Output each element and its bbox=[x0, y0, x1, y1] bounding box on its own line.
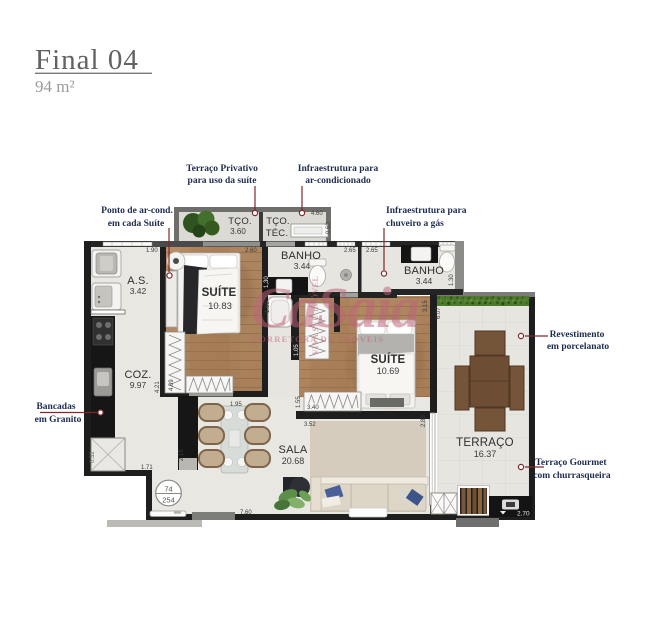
svg-text:0.32: 0.32 bbox=[90, 451, 96, 463]
svg-text:SUÍTE: SUÍTE bbox=[371, 353, 406, 366]
svg-text:0.60: 0.60 bbox=[326, 222, 332, 234]
svg-text:3.60: 3.60 bbox=[230, 227, 246, 236]
svg-text:3.42: 3.42 bbox=[130, 286, 147, 296]
svg-text:Terraço Privativo: Terraço Privativo bbox=[186, 164, 258, 174]
svg-text:4.60: 4.60 bbox=[311, 211, 323, 217]
svg-text:1.90: 1.90 bbox=[146, 248, 158, 254]
svg-text:4.09: 4.09 bbox=[169, 379, 175, 391]
svg-text:em cada Suíte: em cada Suíte bbox=[108, 219, 164, 229]
svg-text:3.40: 3.40 bbox=[307, 405, 319, 411]
svg-text:SALA: SALA bbox=[279, 444, 308, 456]
svg-text:3.15: 3.15 bbox=[423, 300, 429, 312]
svg-text:10.69: 10.69 bbox=[377, 366, 400, 376]
svg-text:Infraestrutura para: Infraestrutura para bbox=[298, 164, 379, 174]
svg-text:Ponto de ar-cond.: Ponto de ar-cond. bbox=[101, 206, 173, 216]
svg-text:SUÍTE: SUÍTE bbox=[202, 286, 237, 299]
svg-text:2.60: 2.60 bbox=[245, 248, 257, 254]
svg-text:TÇO.: TÇO. bbox=[266, 216, 290, 227]
svg-text:TERRAÇO: TERRAÇO bbox=[456, 437, 514, 449]
svg-text:4.21: 4.21 bbox=[155, 381, 161, 393]
svg-text:6.07: 6.07 bbox=[436, 307, 442, 319]
svg-text:2.65: 2.65 bbox=[366, 248, 378, 254]
svg-text:3.44: 3.44 bbox=[294, 261, 311, 271]
svg-text:em Granito: em Granito bbox=[35, 415, 82, 425]
svg-text:VIVA SEU IMÓVEL: VIVA SEU IMÓVEL bbox=[310, 276, 320, 355]
svg-text:TÇO.: TÇO. bbox=[228, 216, 252, 227]
svg-text:2.15: 2.15 bbox=[179, 449, 185, 461]
svg-text:16.37: 16.37 bbox=[474, 449, 497, 459]
svg-text:1.71: 1.71 bbox=[141, 465, 153, 471]
svg-text:2.80: 2.80 bbox=[421, 415, 427, 427]
svg-text:com churrasqueira: com churrasqueira bbox=[533, 471, 611, 481]
svg-text:2.65: 2.65 bbox=[344, 248, 356, 254]
svg-text:1.05: 1.05 bbox=[294, 344, 300, 356]
svg-text:TÉC.: TÉC. bbox=[266, 228, 288, 239]
svg-text:Bancadas: Bancadas bbox=[36, 402, 75, 412]
svg-text:ar-condicionado: ar-condicionado bbox=[305, 176, 371, 186]
svg-text:para uso da suíte: para uso da suíte bbox=[188, 176, 257, 186]
svg-text:94 m²: 94 m² bbox=[35, 77, 75, 96]
svg-text:Revestimento: Revestimento bbox=[550, 330, 605, 340]
svg-text:2.70: 2.70 bbox=[517, 511, 530, 518]
svg-text:em porcelanato: em porcelanato bbox=[547, 342, 610, 352]
svg-text:Final 04: Final 04 bbox=[35, 44, 139, 76]
svg-text:10.83: 10.83 bbox=[208, 301, 232, 312]
svg-text:chuveiro a gás: chuveiro a gás bbox=[386, 219, 444, 229]
svg-text:CaSaia: CaSaia bbox=[251, 275, 419, 340]
svg-text:1.55: 1.55 bbox=[296, 396, 302, 408]
svg-text:1.30: 1.30 bbox=[449, 274, 455, 286]
svg-text:3.52: 3.52 bbox=[304, 422, 316, 428]
svg-text:254: 254 bbox=[162, 496, 175, 505]
svg-text:74: 74 bbox=[164, 485, 172, 494]
svg-text:Terraço Gourmet: Terraço Gourmet bbox=[535, 458, 607, 468]
svg-text:20.68: 20.68 bbox=[282, 456, 305, 466]
svg-text:7.60: 7.60 bbox=[240, 510, 252, 516]
svg-text:9.97: 9.97 bbox=[130, 380, 147, 390]
svg-text:Infraestrutura para: Infraestrutura para bbox=[386, 206, 467, 216]
svg-text:1.95: 1.95 bbox=[230, 402, 242, 408]
